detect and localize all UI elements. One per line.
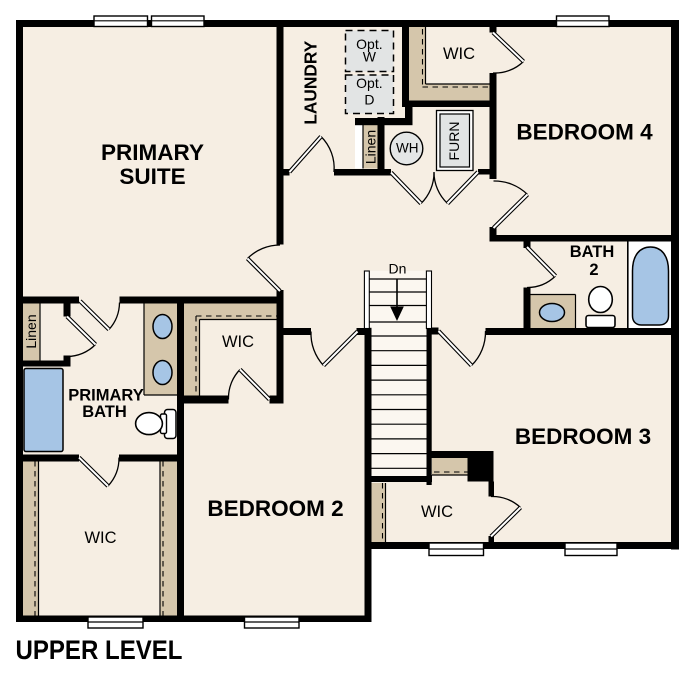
svg-text:D: D <box>364 92 374 108</box>
svg-text:WH: WH <box>396 141 419 156</box>
svg-text:Linen: Linen <box>23 314 39 348</box>
svg-text:SUITE: SUITE <box>119 164 185 189</box>
svg-text:W: W <box>363 49 377 65</box>
svg-text:PRIMARY: PRIMARY <box>68 387 143 405</box>
svg-text:WIC: WIC <box>421 503 453 521</box>
svg-text:WIC: WIC <box>84 529 116 547</box>
svg-text:BATH: BATH <box>82 403 127 421</box>
svg-text:UPPER LEVEL: UPPER LEVEL <box>16 635 183 665</box>
svg-text:FURN: FURN <box>446 122 462 161</box>
svg-text:Opt.: Opt. <box>356 75 382 91</box>
svg-text:BATH: BATH <box>570 243 615 261</box>
svg-text:Linen: Linen <box>363 130 379 164</box>
svg-text:BEDROOM 2: BEDROOM 2 <box>207 496 343 521</box>
svg-text:BEDROOM 3: BEDROOM 3 <box>515 424 651 449</box>
svg-text:WIC: WIC <box>443 45 475 63</box>
svg-text:2: 2 <box>589 261 598 279</box>
svg-text:BEDROOM 4: BEDROOM 4 <box>516 120 653 145</box>
svg-text:LAUNDRY: LAUNDRY <box>300 40 320 124</box>
svg-text:Dn: Dn <box>389 261 407 277</box>
svg-text:PRIMARY: PRIMARY <box>101 140 204 165</box>
svg-text:WIC: WIC <box>222 333 254 351</box>
